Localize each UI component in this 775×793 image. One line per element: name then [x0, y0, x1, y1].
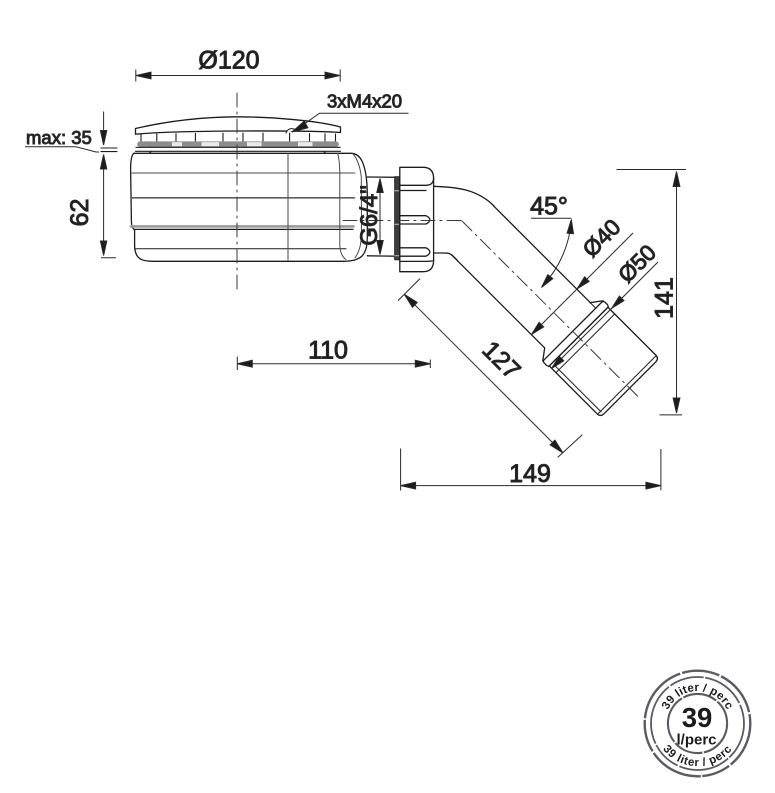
- svg-text:G6/4": G6/4": [356, 185, 383, 246]
- svg-text:l/perc: l/perc: [676, 732, 716, 749]
- svg-text:Ø120: Ø120: [198, 47, 259, 75]
- svg-text:Ø40: Ø40: [578, 214, 626, 262]
- svg-text:141: 141: [651, 277, 679, 319]
- svg-text:127: 127: [477, 336, 526, 385]
- svg-text:149: 149: [509, 460, 551, 488]
- svg-text:3xM4x20: 3xM4x20: [327, 91, 402, 112]
- svg-text:62: 62: [66, 199, 94, 227]
- svg-text:110: 110: [308, 337, 348, 365]
- svg-text:39: 39: [682, 702, 713, 733]
- svg-text:45°: 45°: [530, 193, 568, 221]
- svg-text:max: 35: max: 35: [26, 127, 92, 148]
